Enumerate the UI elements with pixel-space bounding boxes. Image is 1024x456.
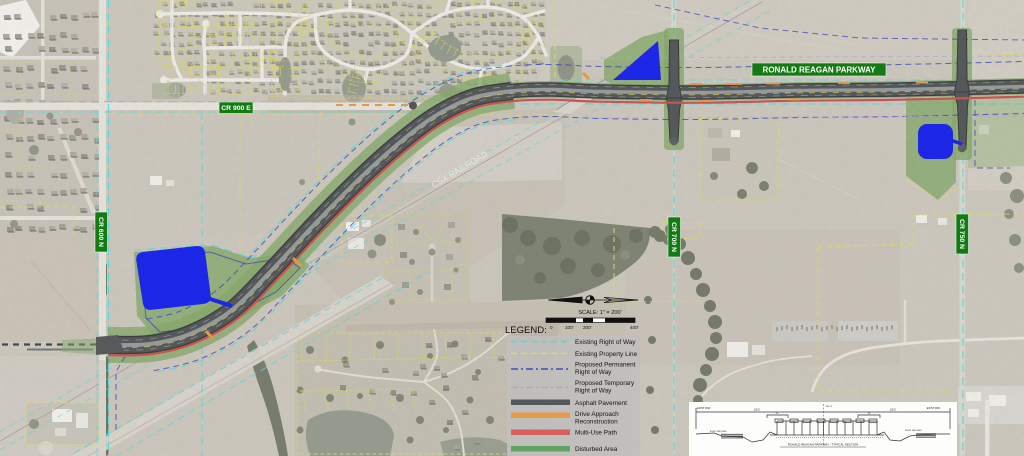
svg-text:Right of Way: Right of Way — [575, 369, 612, 376]
svg-text:Drive Approach: Drive Approach — [575, 411, 619, 418]
svg-text:Existing Right of Way: Existing Right of Way — [575, 339, 636, 346]
svg-text:RONALD REAGAN PARKWAY - TYPICA: RONALD REAGAN PARKWAY - TYPICAL SECTION — [788, 443, 858, 447]
svg-text:EXIST R/W: EXIST R/W — [697, 406, 711, 410]
svg-text:LEGEND:: LEGEND: — [505, 325, 547, 336]
svg-text:Proposed Temporary: Proposed Temporary — [575, 380, 635, 387]
svg-text:RONALD REAGAN PARKWAY: RONALD REAGAN PARKWAY — [763, 65, 877, 74]
svg-text:Existing Property Line: Existing Property Line — [575, 351, 638, 358]
svg-text:Reconstruction: Reconstruction — [575, 418, 618, 425]
svg-text:PR CL: PR CL — [826, 406, 833, 408]
svg-text:CR 700 N: CR 700 N — [670, 222, 677, 252]
svg-text:Proposed Permanent: Proposed Permanent — [575, 362, 636, 369]
svg-text:EXIST R/W: EXIST R/W — [927, 406, 941, 410]
svg-text:Multi-Use Path: Multi-Use Path — [575, 430, 617, 437]
svg-text:CR 900 E: CR 900 E — [221, 105, 251, 112]
svg-text:100': 100' — [565, 325, 574, 330]
svg-text:400': 400' — [630, 325, 639, 330]
svg-text:200': 200' — [583, 325, 592, 330]
svg-text:EXIST GROUND: EXIST GROUND — [710, 431, 727, 433]
svg-text:132.5': 132.5' — [890, 409, 897, 412]
svg-text:CR 600 N: CR 600 N — [97, 217, 104, 247]
svg-text:EXIST GROUND: EXIST GROUND — [905, 430, 922, 432]
svg-text:Asphalt Pavement: Asphalt Pavement — [575, 400, 627, 407]
svg-text:0: 0 — [550, 325, 553, 330]
svg-text:CR 750 N: CR 750 N — [958, 219, 965, 249]
svg-text:Disturbed Area: Disturbed Area — [575, 446, 618, 453]
svg-text:132.5': 132.5' — [754, 409, 761, 412]
svg-text:SCALE: 1" = 200': SCALE: 1" = 200' — [578, 310, 621, 316]
svg-text:Right of Way: Right of Way — [575, 387, 612, 394]
